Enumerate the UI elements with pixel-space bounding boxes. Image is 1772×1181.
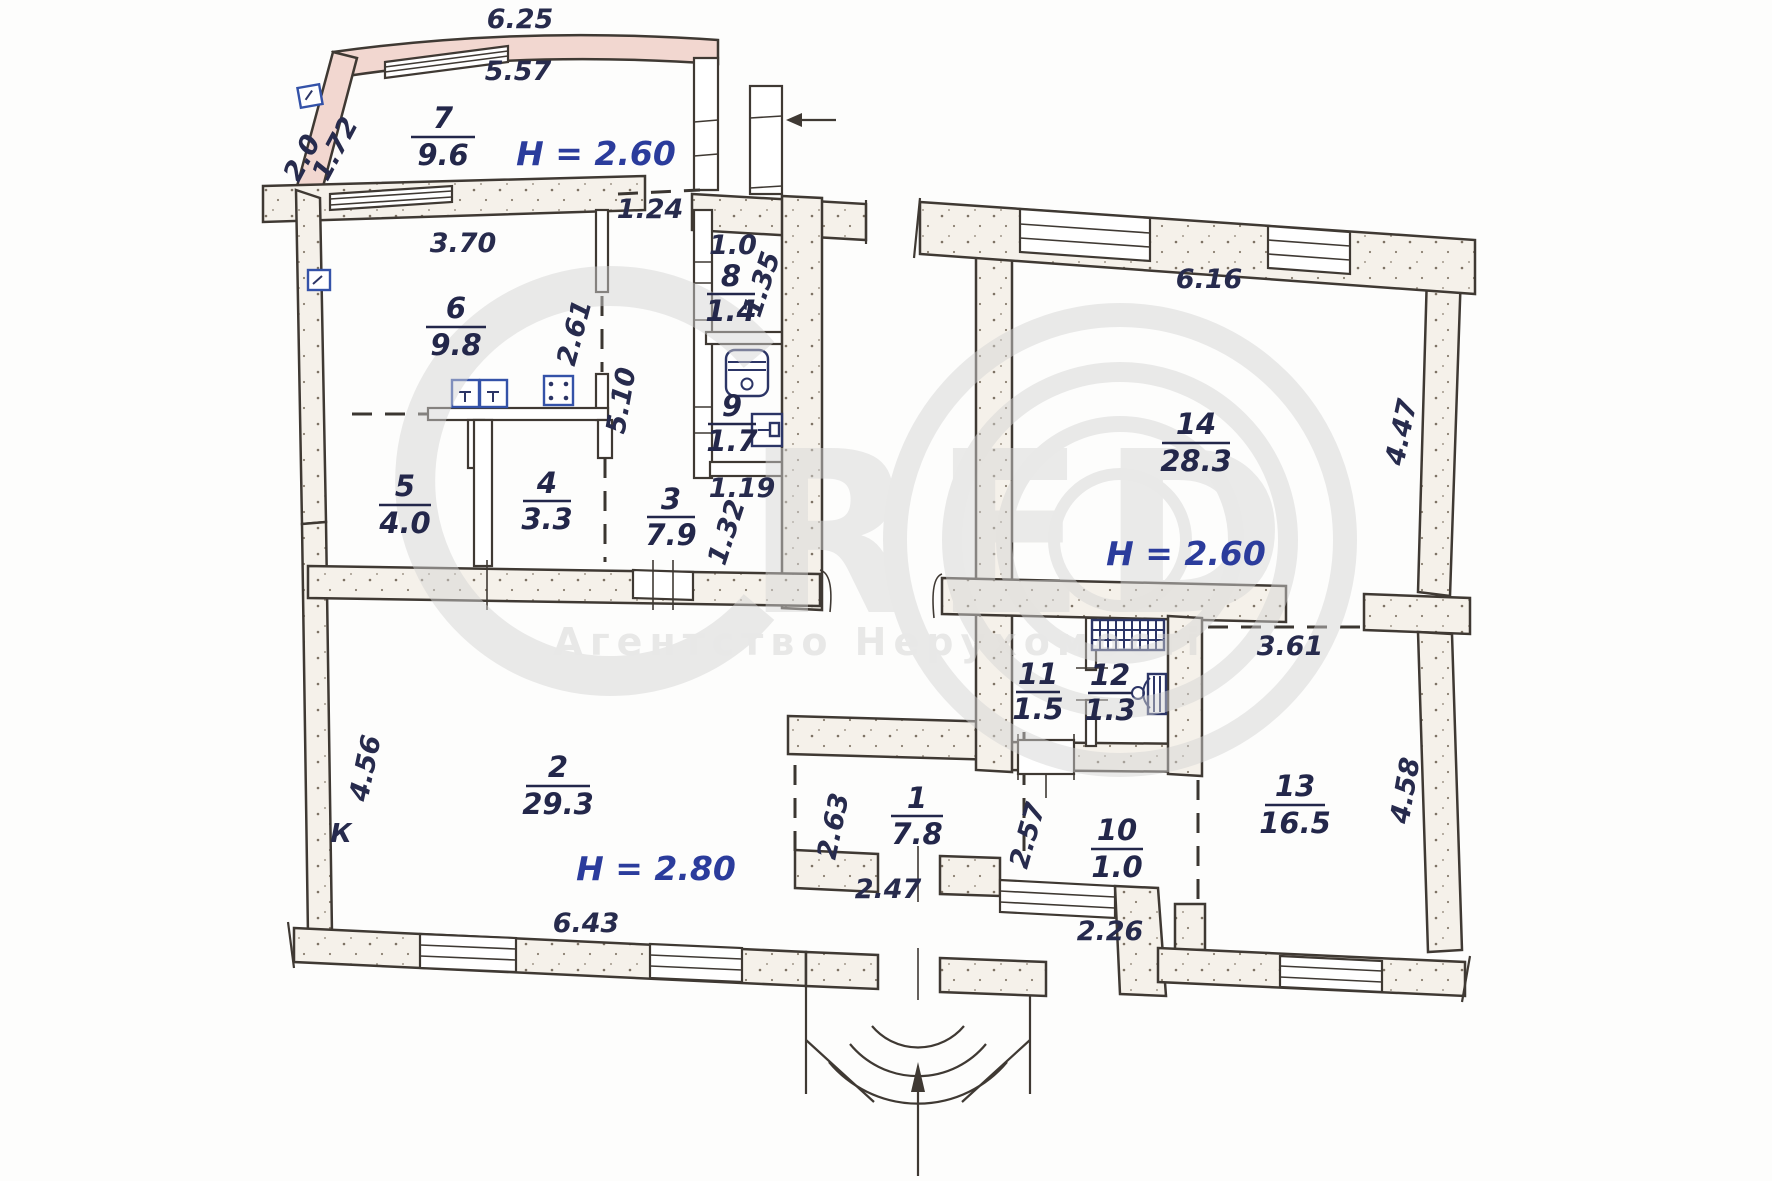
dim-room14-right: 4.47 [1379,396,1423,469]
entrance-arrow-icon [911,1062,925,1176]
room-label-4: 4 3.3 [521,466,572,536]
vent-icon-room7 [297,84,322,108]
wall-bay-right [694,58,718,190]
room-label-11: 11 1.5 [1012,657,1063,726]
room-label-1: 1 7.8 [891,781,943,851]
room-3-area: 7.9 [645,518,696,552]
room-14-number: 14 [1176,407,1216,441]
room-6-number: 6 [446,291,466,325]
dim-room2-bottom: 6.43 [553,908,620,939]
room-label-3: 3 7.9 [645,482,696,552]
wall-right-room13 [1418,632,1462,952]
room-9-number: 9 [722,389,742,423]
kitchen-counter-wall [428,408,608,420]
room-2-number: 2 [548,750,568,784]
window-room14-top-1 [1020,209,1150,261]
wall-T-stub [1364,594,1470,634]
room-7-area: 9.6 [417,138,468,172]
dim-top-inner: 5.57 [485,56,552,87]
dim-room8-top: 1.0 [709,230,757,261]
room-3-number: 3 [661,482,681,516]
pillar-13-stub [1175,904,1205,950]
window-room14-top-2 [1268,226,1350,274]
room-label-12: 12 1.3 [1084,658,1135,727]
room-label-6: 6 9.8 [426,291,486,362]
height-room7: H = 2.60 [516,134,676,173]
window-bottom-1 [420,934,516,972]
room-label-2: 2 29.3 [522,750,594,821]
room-6-area: 9.8 [430,328,481,362]
room-5-number: 5 [395,469,415,503]
dim-room13-right: 4.58 [1384,755,1426,827]
dim-room9-bottom: 1.19 [709,473,776,504]
floor-plan-drawing: RED Агентство Нерухомості 7 9.6 6 9.8 8 … [0,0,1772,1181]
window-bottom-3 [1280,956,1382,992]
wall-C [788,716,1000,760]
room-1-number: 1 [907,781,927,815]
dim-room1-right: 2.57 [1004,799,1052,872]
dim-room13-top: 3.61 [1257,631,1324,662]
dim-room14-top: 6.16 [1176,264,1243,295]
left-wall-mark: К [330,819,353,849]
door-wall-A [633,570,693,600]
room-9-area: 1.7 [706,424,758,458]
dim-top-outer: 6.25 [487,4,554,35]
room-4-area: 3.3 [521,502,572,536]
wall-left-upper [296,190,326,524]
dim-room10-bottom: 2.26 [1077,916,1144,947]
room-7-number: 7 [433,101,454,135]
dim-room2-left: 4.56 [343,732,387,805]
room-8-number: 8 [721,259,741,293]
room-2-area: 29.3 [522,787,594,821]
room-1-area: 7.8 [891,817,942,851]
stove-icon [544,376,573,405]
height-room2: H = 2.80 [576,849,736,888]
floor-plan-page: RED Агентство Нерухомості 7 9.6 6 9.8 8 … [0,0,1772,1181]
room-label-7: 7 9.6 [411,101,475,172]
room-12-number: 12 [1090,658,1130,692]
height-room14: H = 2.60 [1106,534,1266,573]
dim-room6-top: 3.70 [430,228,497,259]
dim-entrance-door: 2.47 [855,874,922,905]
wall-room1-bottom-right [940,856,1000,896]
room-12-area: 1.3 [1084,693,1135,727]
room-13-area: 16.5 [1259,806,1331,840]
room-10-number: 10 [1097,813,1137,847]
room-11-number: 11 [1018,657,1058,691]
room-label-13: 13 16.5 [1259,769,1331,840]
room-10-area: 1.0 [1091,850,1142,884]
room-label-9: 9 1.7 [706,389,758,458]
window-room10-bottom [1000,880,1115,918]
room-14-area: 28.3 [1160,444,1232,478]
room-4-number: 4 [536,466,557,500]
dim-door-124: 1.24 [617,194,684,225]
window-bottom-2 [650,944,742,982]
dim-room1-left: 2.63 [812,790,856,862]
duct-arrow-icon [786,113,836,127]
porch-pillar-left [806,952,878,989]
room-11-area: 1.5 [1012,692,1063,726]
wall-5-4 [474,420,492,566]
porch-pillar-right [940,958,1046,996]
entrance-stairs [806,986,1030,1176]
room-label-10: 10 1.0 [1091,813,1143,884]
room-5-area: 4.0 [378,506,430,540]
room-13-number: 13 [1275,769,1315,803]
chimney-duct [750,86,782,194]
